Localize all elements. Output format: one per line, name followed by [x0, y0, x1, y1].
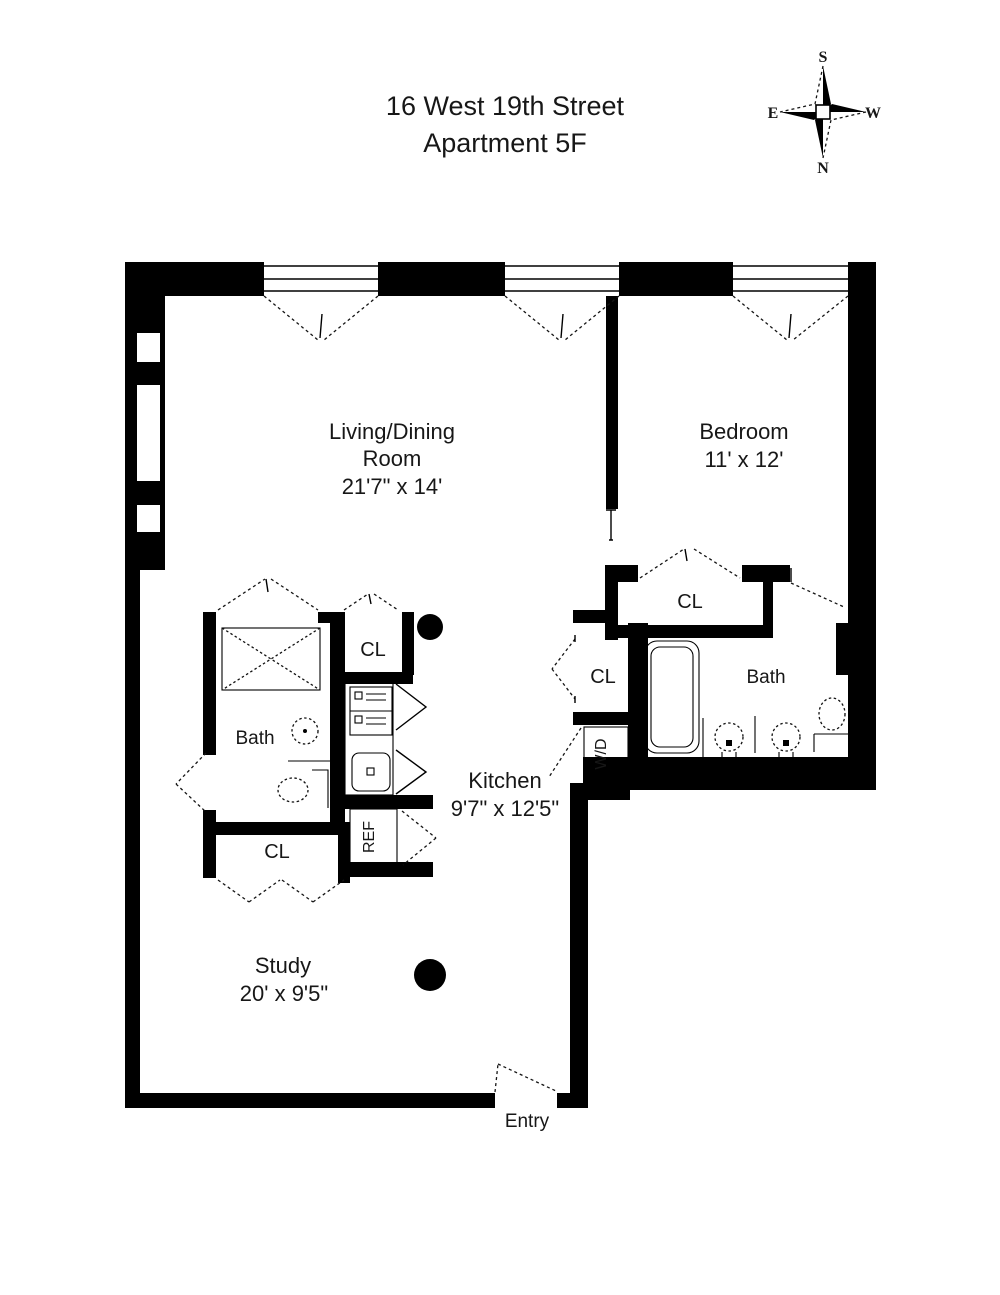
- window-glazing: [733, 266, 848, 291]
- entry-door-swing: [495, 1064, 556, 1092]
- hall-closet-wall: [573, 610, 617, 623]
- kitchen-counter-wall: [330, 795, 433, 809]
- master-bath-wall: [203, 612, 216, 755]
- study-closet-label: CL: [264, 841, 290, 863]
- second-bath-label: Bath: [746, 667, 785, 688]
- shower-cross: [222, 628, 320, 690]
- hall-closet-wall: [570, 783, 630, 800]
- washer-dryer-label: W/D: [593, 738, 610, 769]
- bedroom-doorway-jamb: [606, 510, 616, 540]
- bedroom-dimensions: 11' x 12': [705, 447, 784, 472]
- bedroom-closet-wall: [763, 582, 773, 627]
- interior-walls: [203, 296, 790, 883]
- window-glazing: [264, 266, 378, 291]
- right-wall-notch: [836, 623, 848, 675]
- study-closet-wall: [338, 822, 350, 883]
- study-closet-wall: [203, 822, 338, 835]
- hall-closet-label: CL: [590, 666, 616, 688]
- washer-dryer-door-swing: [549, 728, 581, 777]
- kitchen-closet-wall: [402, 612, 414, 675]
- compass-rose-icon: S N E W: [768, 49, 881, 177]
- compass-label-north: N: [817, 160, 829, 177]
- sink-drain: [303, 729, 307, 733]
- title-line-1: 16 West 19th Street: [386, 91, 625, 121]
- stove-burner: [355, 716, 362, 723]
- kitchen-dimensions: 9'7" x 12'5": [451, 796, 559, 821]
- refrigerator-door-swing: [402, 811, 436, 865]
- stove-icon: [350, 687, 392, 735]
- kitchen-counter: [345, 682, 426, 795]
- living-bedroom-divider-wall: [606, 296, 618, 509]
- kitchen-closet-label: CL: [360, 639, 386, 661]
- title-line-2: Apartment 5F: [423, 128, 587, 158]
- living-room-label: Living/Dining: [329, 419, 455, 444]
- bedroom-bath-door-swing: [791, 583, 844, 607]
- study-closet-door-swing: [218, 880, 344, 902]
- lower-right-wall: [570, 790, 588, 1093]
- toilet-icon: [278, 778, 308, 802]
- study-dimensions: 20' x 9'5": [240, 981, 328, 1006]
- sink-icon: [772, 723, 800, 751]
- bottom-wall: [125, 1093, 495, 1108]
- stove-grates: [366, 694, 386, 724]
- master-bath-label: Bath: [235, 728, 274, 749]
- shower-icon: [222, 628, 320, 690]
- windows: [264, 266, 848, 340]
- toilet-bowl: [819, 698, 845, 730]
- kitchen-closet-door-tick: [369, 594, 371, 604]
- title-block: 16 West 19th Street Apartment 5F: [386, 91, 625, 158]
- bedroom-closet-label: CL: [677, 591, 703, 613]
- bathtub-outer: [645, 641, 699, 753]
- sink-drain: [726, 740, 732, 746]
- hall-closet-wall: [573, 712, 628, 725]
- left-wall-lower: [125, 570, 140, 1093]
- kitchen-sink-drain: [367, 768, 374, 775]
- entry-label: Entry: [505, 1111, 550, 1132]
- hall-closet-door-swing: [552, 639, 575, 699]
- bathtub-inner: [651, 647, 693, 747]
- wall-niche: [137, 333, 160, 362]
- bedroom-closet-wall: [742, 565, 790, 582]
- bathtub-icon: [645, 641, 699, 753]
- compass-center: [816, 105, 830, 119]
- window-swing-tick: [561, 314, 563, 338]
- compass-label-east: E: [768, 105, 779, 122]
- window-glazing: [505, 266, 619, 291]
- floorplan-canvas: 16 West 19th Street Apartment 5F S N E W: [0, 0, 1000, 1295]
- master-bath-door-swing: [218, 579, 318, 610]
- compass-label-west: W: [865, 105, 881, 122]
- sink-drain: [783, 740, 789, 746]
- right-wall: [848, 296, 876, 758]
- wall-niche: [137, 505, 160, 532]
- double-sink-icons: [715, 723, 800, 758]
- cabinet-doors-open: [396, 684, 426, 794]
- kitchen-sink-basin: [352, 753, 390, 791]
- kitchen-sink-icon: [352, 753, 390, 791]
- master-bath-side-door-swing: [176, 753, 206, 812]
- structural-column: [417, 614, 443, 640]
- refrigerator-label: REF: [361, 821, 378, 853]
- kitchen-label: Kitchen: [468, 768, 541, 793]
- bedroom-closet-door-tick: [685, 549, 687, 561]
- floorplan-drawing: 16 West 19th Street Apartment 5F S N E W: [0, 0, 1000, 1295]
- living-room-dimensions: 21'7" x 14': [342, 474, 443, 499]
- wall-niche: [137, 385, 160, 481]
- living-room-label-2: Room: [363, 446, 422, 471]
- study-label: Study: [255, 953, 311, 978]
- master-bath-wall: [203, 810, 216, 878]
- stove-burner: [355, 692, 362, 699]
- bottom-wall-stub: [557, 1093, 588, 1108]
- compass-label-south: S: [819, 49, 828, 66]
- bedroom-label: Bedroom: [699, 419, 788, 444]
- sink-icon: [715, 723, 743, 751]
- bedroom-closet-wall: [605, 565, 638, 582]
- bedroom-closet-door-swing: [640, 549, 740, 578]
- master-bath-door-tick: [266, 579, 268, 592]
- structural-column: [414, 959, 446, 991]
- toilet-partition: [312, 770, 328, 808]
- window-swing-tick: [320, 314, 322, 338]
- window-swing-tick: [789, 314, 791, 338]
